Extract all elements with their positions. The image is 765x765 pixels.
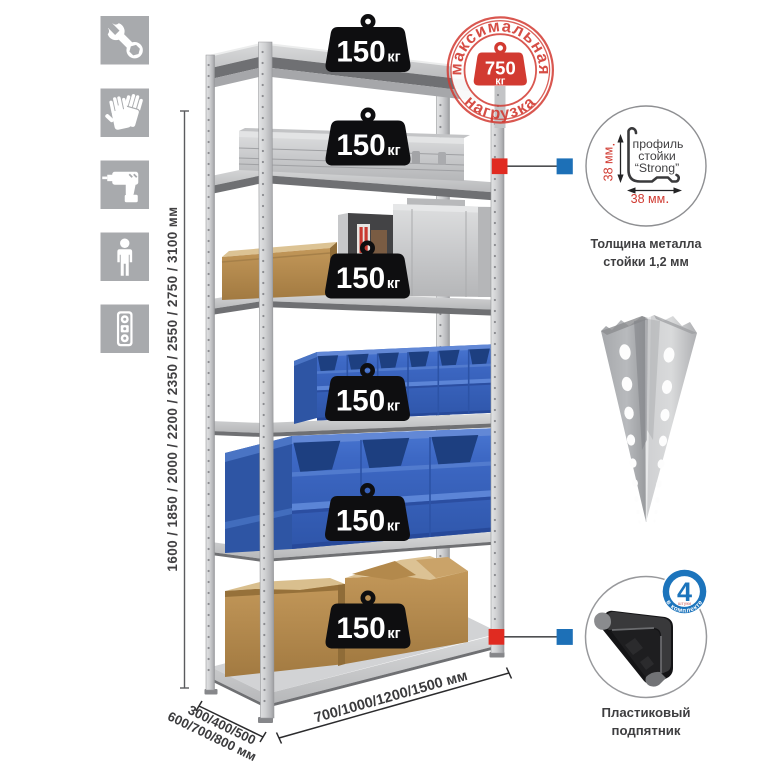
svg-text:38 мм.: 38 мм. [631, 190, 670, 207]
svg-text:“Strong”: “Strong” [635, 161, 679, 175]
svg-text:Пластиковый: Пластиковый [601, 705, 690, 720]
svg-text:штуки: штуки [678, 601, 692, 606]
svg-text:Толщина металла: Толщина металла [590, 237, 702, 251]
svg-text:стойки 1,2 мм: стойки 1,2 мм [603, 255, 689, 269]
svg-text:1600 / 1850 / 2000 / 2200 / 23: 1600 / 1850 / 2000 / 2200 / 2350 / 2550 … [165, 206, 180, 571]
svg-text:подпятник: подпятник [611, 723, 680, 738]
svg-text:кг: кг [495, 76, 506, 88]
